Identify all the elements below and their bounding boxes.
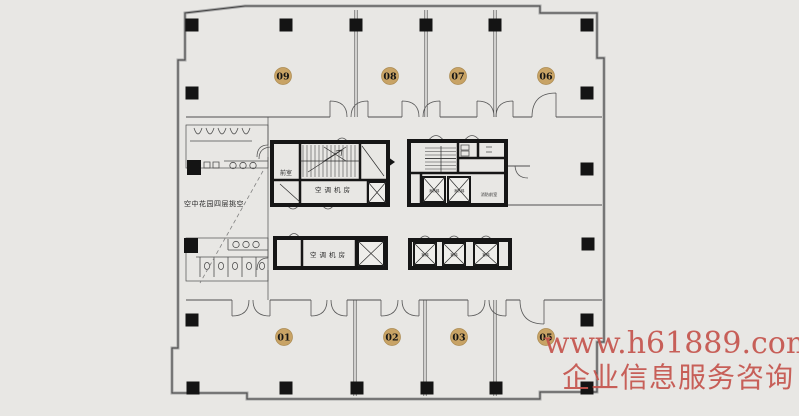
watermark: www.h61889.com 企业信息服务咨询 [544, 326, 799, 394]
unit-badge: 02 [384, 329, 401, 346]
column [350, 19, 363, 32]
door-arcs [232, 93, 556, 324]
unit-badge: 06 [538, 68, 555, 85]
toilet [204, 262, 209, 269]
duct-shaft [187, 160, 201, 175]
elevator-label: 客梯 [482, 252, 490, 257]
unit-badge: 03 [451, 329, 468, 346]
duct-shaft [184, 238, 198, 253]
column [186, 87, 199, 100]
wall-arrow-marker [388, 157, 395, 167]
watermark-url: www.h61889.com [544, 326, 799, 361]
watermark-caption: 企业信息服务咨询 [562, 361, 794, 394]
sink [253, 241, 259, 247]
unit-number: 09 [276, 71, 290, 82]
column [187, 382, 200, 395]
toilet [232, 262, 237, 269]
core-upper-left: 前室 空调机房 [272, 142, 395, 205]
column [421, 382, 434, 395]
unit-number: 03 [452, 332, 465, 343]
toilet [259, 262, 264, 269]
column [420, 19, 433, 32]
hvac-room-label: 空调机房 [310, 250, 348, 259]
unit-badge: 01 [276, 329, 293, 346]
unit-number: 07 [451, 71, 464, 82]
elevator-label: 消防梯 [454, 188, 465, 193]
unit-badge: 08 [382, 68, 399, 85]
unit-number: 06 [539, 71, 553, 82]
column [280, 382, 293, 395]
column [581, 19, 594, 32]
column [489, 19, 502, 32]
elevator-label: 客梯 [421, 252, 429, 257]
corridor-walls [186, 117, 602, 300]
fire-lobby-label: 消防前室 [481, 191, 498, 198]
column [581, 163, 594, 176]
toilet [218, 262, 223, 269]
hvac-room-label: 空调机房 [315, 185, 353, 194]
column [582, 238, 595, 251]
core-upper-right: 消防梯 消防梯 消防前室 [409, 141, 506, 205]
service-room-fixtures [461, 145, 492, 156]
column [581, 87, 594, 100]
elevator-bank: 客梯 客梯 客梯 [410, 240, 510, 268]
column [351, 382, 364, 395]
door-arc-top-rooms [330, 93, 556, 117]
unit-badge: 09 [275, 68, 292, 85]
column [490, 382, 503, 395]
elevator-label: 客梯 [450, 252, 458, 257]
elevator-label: 消防梯 [429, 188, 440, 193]
core-lower-left: 空调机房 [275, 238, 386, 268]
sky-garden-label: 空中花园四层挑空 [184, 199, 244, 208]
sink [233, 241, 239, 247]
stair-rail [425, 146, 456, 172]
unit-number: 02 [385, 332, 398, 343]
unit-number: 08 [383, 71, 397, 82]
column [581, 314, 594, 327]
column [280, 19, 293, 32]
floor-plan: 空中花园四层挑空 前室 空调机房 空调机房 消防梯 消防梯 消防前室 [0, 0, 799, 416]
urinal-row [190, 128, 252, 141]
counter [228, 239, 268, 250]
anteroom-label: 前室 [280, 169, 292, 177]
floor-plan-drawing: 空中花园四层挑空 前室 空调机房 空调机房 消防梯 消防梯 消防前室 [0, 0, 799, 416]
column [186, 19, 199, 32]
unit-badge: 07 [450, 68, 467, 85]
toilet [246, 262, 251, 269]
washroom-lower [184, 238, 268, 281]
door-arc-bottom-rooms [232, 300, 544, 324]
washroom-upper [186, 125, 268, 175]
unit-number: 01 [277, 332, 290, 343]
column [186, 314, 199, 327]
sink [243, 241, 249, 247]
